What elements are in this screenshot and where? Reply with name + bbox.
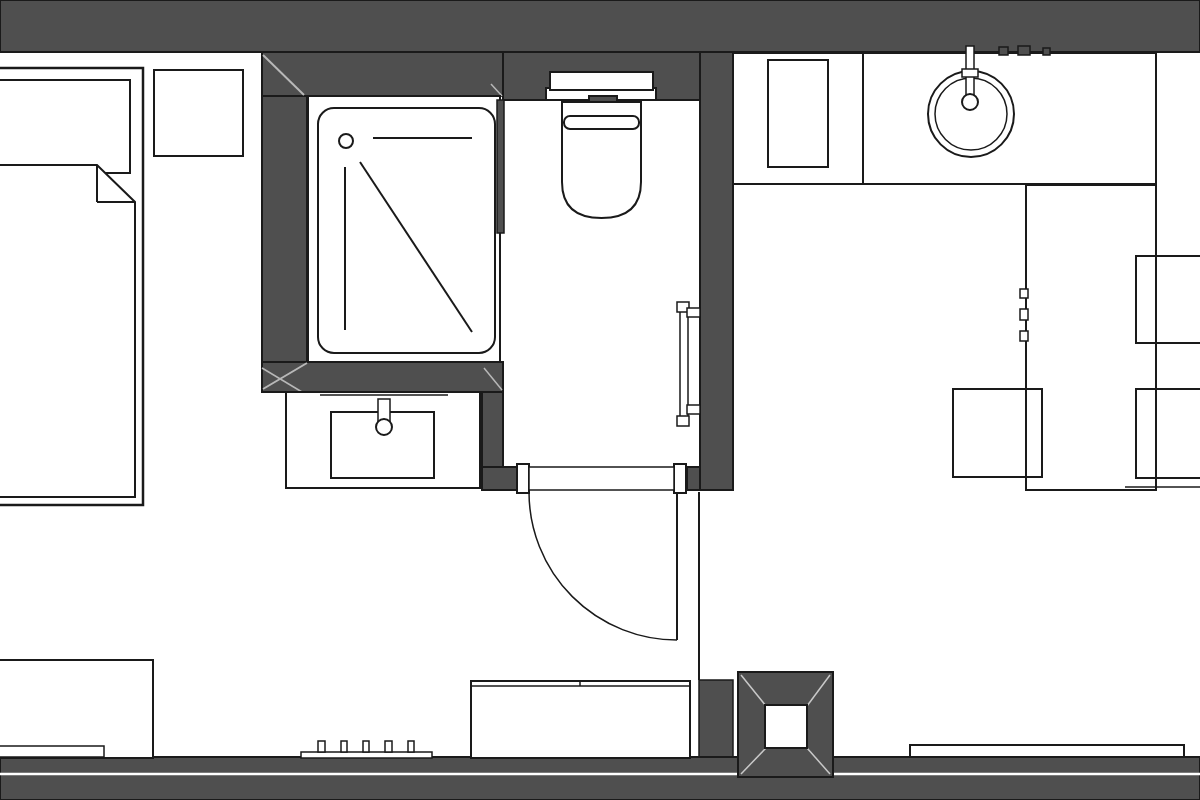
wall-switch-2 bbox=[1018, 46, 1030, 55]
towel-rail-bracket-top bbox=[687, 308, 700, 317]
kitchen-faucet-head bbox=[962, 94, 978, 110]
radiator-tick-1 bbox=[318, 741, 325, 752]
door-jamb-left bbox=[517, 464, 529, 493]
towel-rail-bracket-bottom bbox=[687, 405, 700, 414]
bed-blanket bbox=[0, 165, 135, 497]
bathroom-left-wall bbox=[262, 96, 307, 362]
floor-plan-page bbox=[0, 0, 1200, 800]
toilet-bowl bbox=[562, 102, 641, 218]
window-ledge bbox=[910, 745, 1184, 757]
wc-right-wall bbox=[700, 52, 733, 490]
bottom-cabinet bbox=[471, 681, 690, 758]
bottom-wall bbox=[0, 757, 1200, 800]
bathroom-bottom-wall-band bbox=[262, 362, 503, 392]
cistern-tank bbox=[550, 72, 653, 90]
sideboard bbox=[0, 660, 153, 758]
radiator-tick-3 bbox=[363, 741, 369, 752]
door-wall-right bbox=[687, 467, 700, 490]
floor-plan bbox=[0, 0, 1200, 800]
radiator-base bbox=[301, 752, 432, 758]
column-inner bbox=[765, 705, 807, 748]
door-wall-left bbox=[482, 467, 518, 490]
door-swing-arc bbox=[529, 492, 677, 640]
radiator-tick-5 bbox=[408, 741, 414, 752]
shower-wc-partition bbox=[497, 100, 504, 233]
vanity-faucet-head bbox=[376, 419, 392, 435]
table-handle-1 bbox=[1020, 289, 1028, 298]
nightstand bbox=[154, 70, 243, 156]
door-jamb-right bbox=[674, 464, 686, 493]
radiator-tick-2 bbox=[341, 741, 347, 752]
door-leaf-closed bbox=[529, 467, 674, 490]
wall-switch-1 bbox=[999, 47, 1008, 55]
vanity-right-wall bbox=[482, 392, 503, 468]
table-handle-3 bbox=[1020, 331, 1028, 341]
kitchen-faucet-bar bbox=[962, 69, 978, 77]
bed-pillow bbox=[0, 80, 130, 173]
towel-rail-cap-bottom bbox=[677, 416, 689, 426]
top-wall bbox=[0, 0, 1200, 52]
shower-drain bbox=[339, 134, 353, 148]
table-handle-2 bbox=[1020, 309, 1028, 320]
wall-switch-3 bbox=[1043, 48, 1050, 55]
radiator-tick-4 bbox=[385, 741, 392, 752]
sideboard-shelf bbox=[0, 746, 104, 757]
